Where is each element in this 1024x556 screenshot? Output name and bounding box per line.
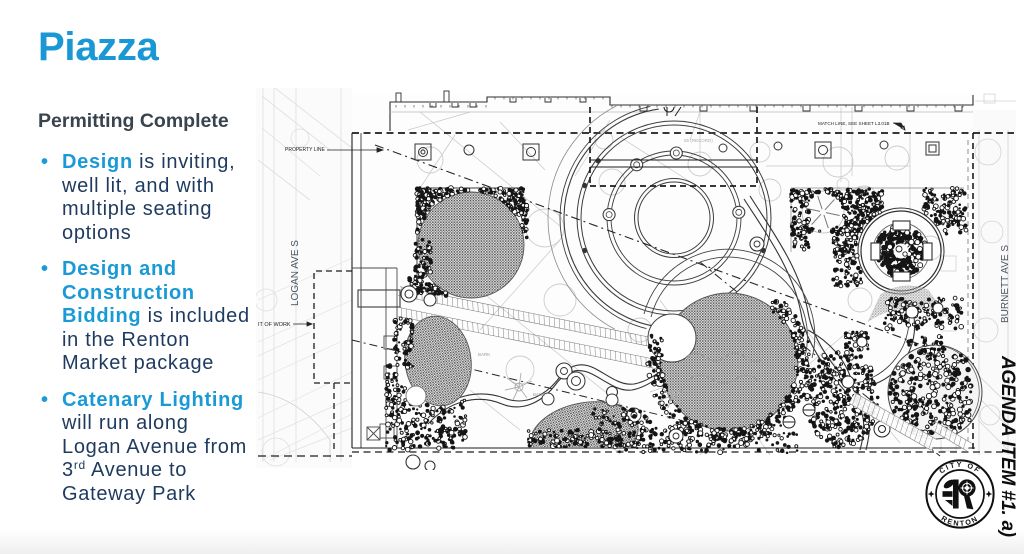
- svg-text:BURNETT AVE S: BURNETT AVE S: [1000, 245, 1011, 323]
- svg-text:LOGAN AVE S: LOGAN AVE S: [290, 240, 301, 306]
- svg-text:BARK: BARK: [533, 392, 545, 397]
- svg-text:55 (RECORD): 55 (RECORD): [684, 138, 713, 143]
- svg-text:BARK: BARK: [478, 352, 490, 357]
- svg-text:MATCH LINE, SEE SHEET L3.01B: MATCH LINE, SEE SHEET L3.01B: [818, 121, 890, 126]
- svg-text:PROPERTY LINE: PROPERTY LINE: [285, 147, 325, 153]
